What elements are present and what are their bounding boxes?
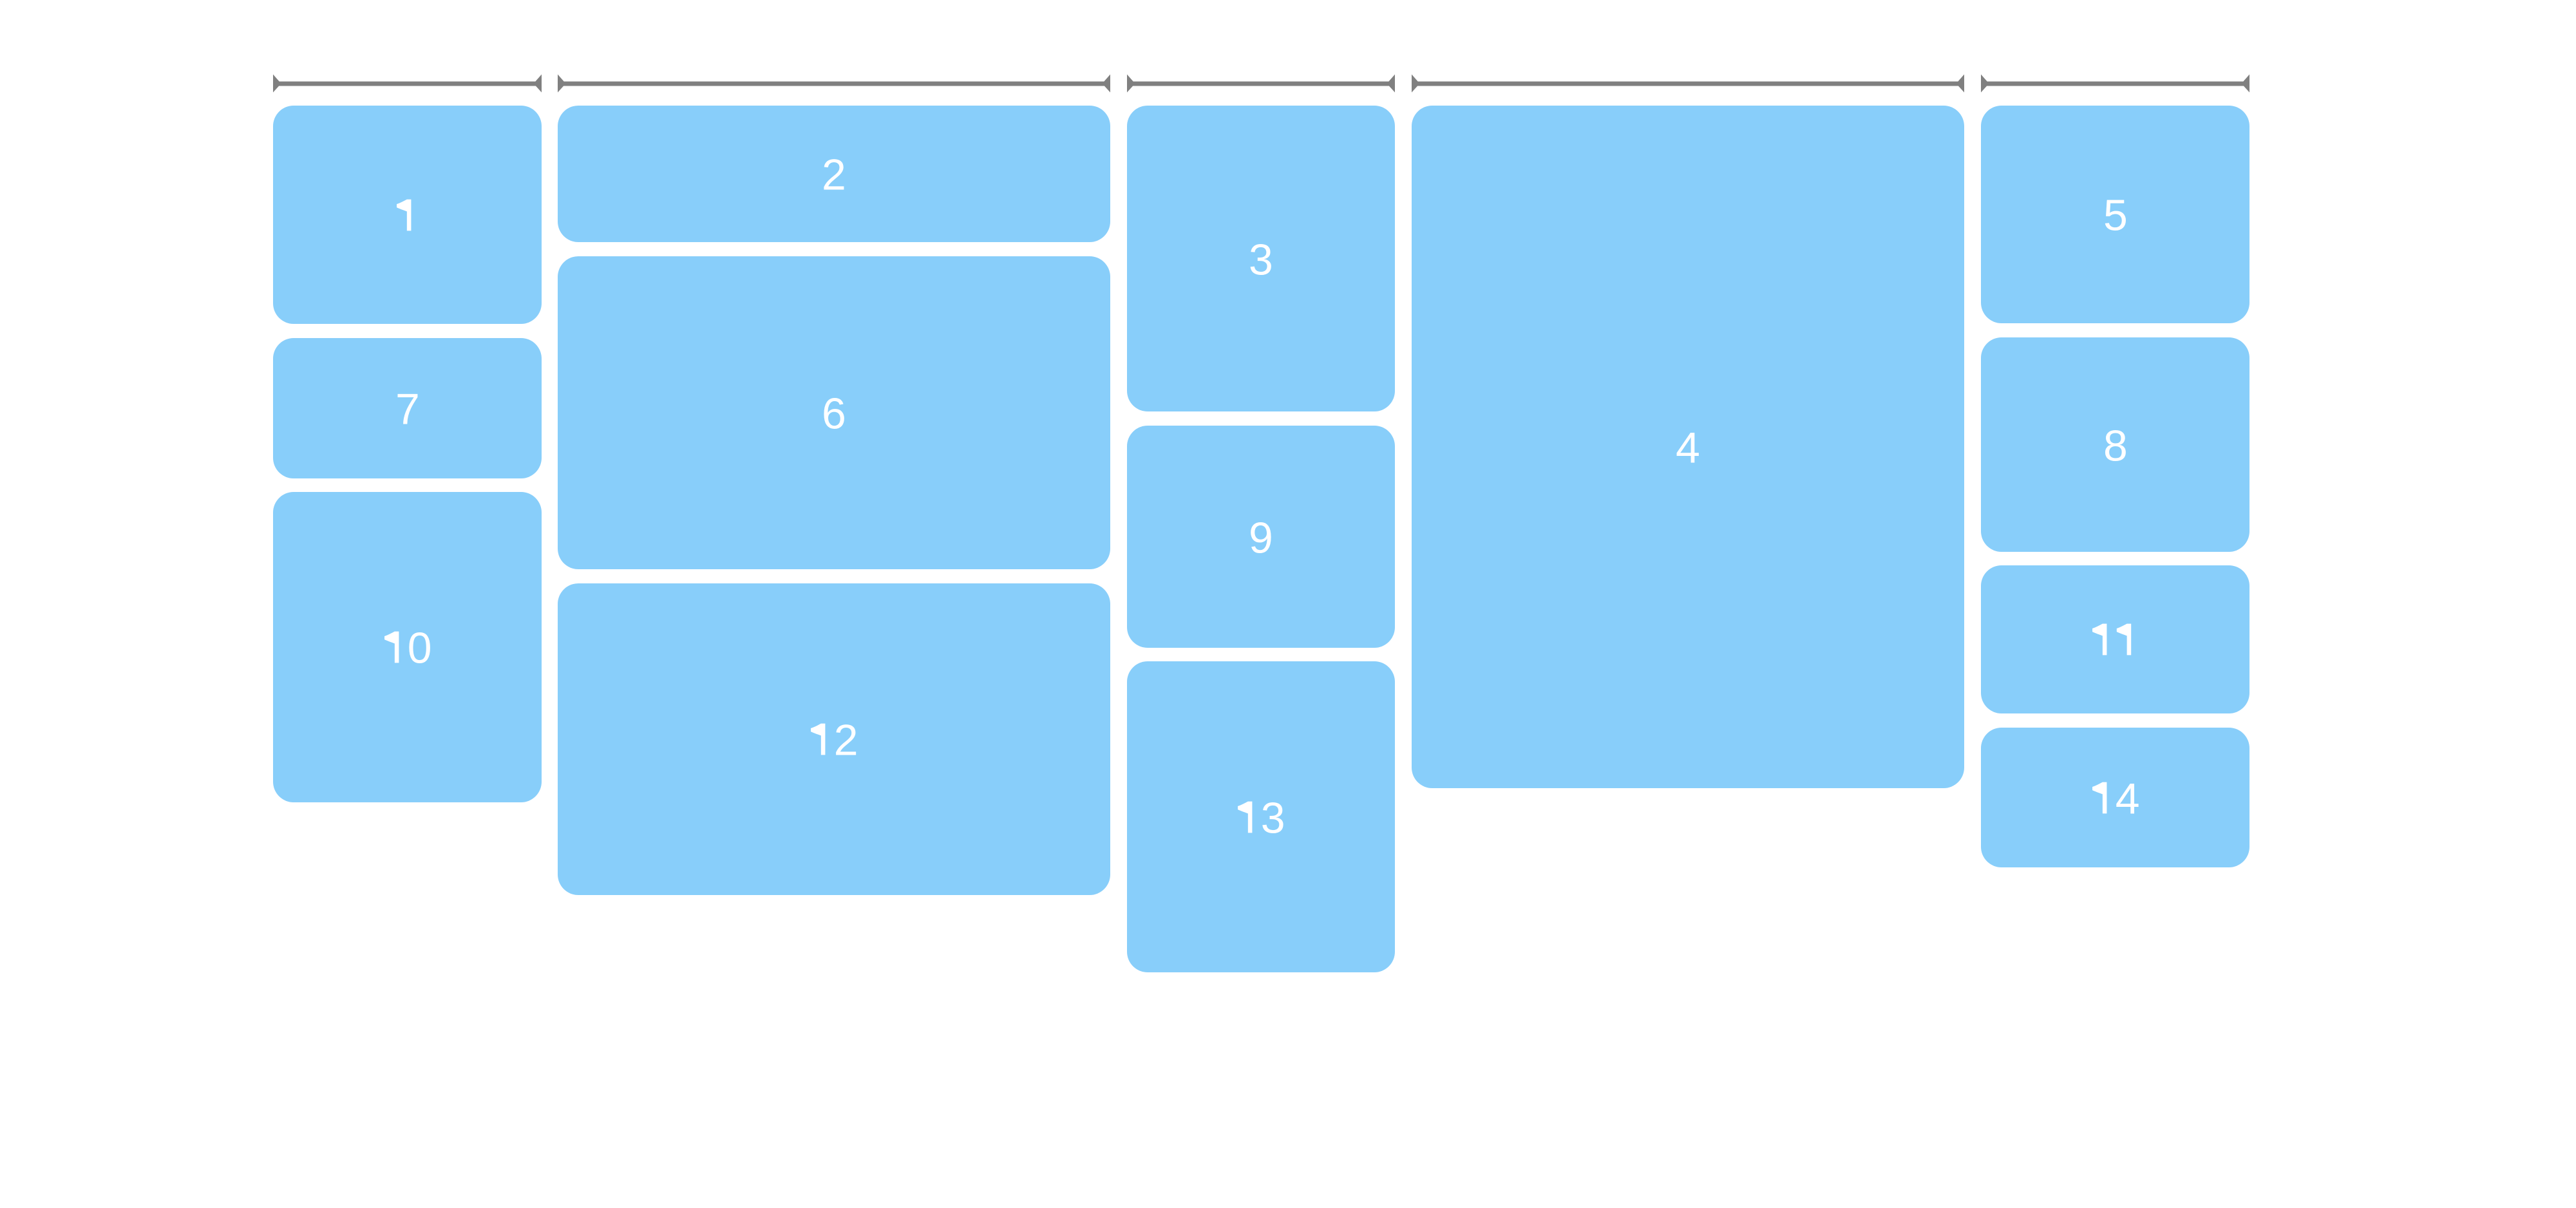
svg-text:2: 2 <box>822 152 846 196</box>
svg-text:2: 2 <box>834 717 858 761</box>
svg-text:0: 0 <box>408 625 432 669</box>
svg-text:5: 5 <box>2103 193 2128 236</box>
svg-text:8: 8 <box>2103 423 2128 467</box>
svg-text:9: 9 <box>1249 515 1273 559</box>
svg-text:6: 6 <box>822 391 846 435</box>
svg-text:4: 4 <box>2116 776 2140 820</box>
svg-text:7: 7 <box>395 386 420 430</box>
svg-text:3: 3 <box>1249 237 1273 281</box>
svg-text:3: 3 <box>1261 795 1285 839</box>
svg-text:4: 4 <box>1676 425 1700 469</box>
